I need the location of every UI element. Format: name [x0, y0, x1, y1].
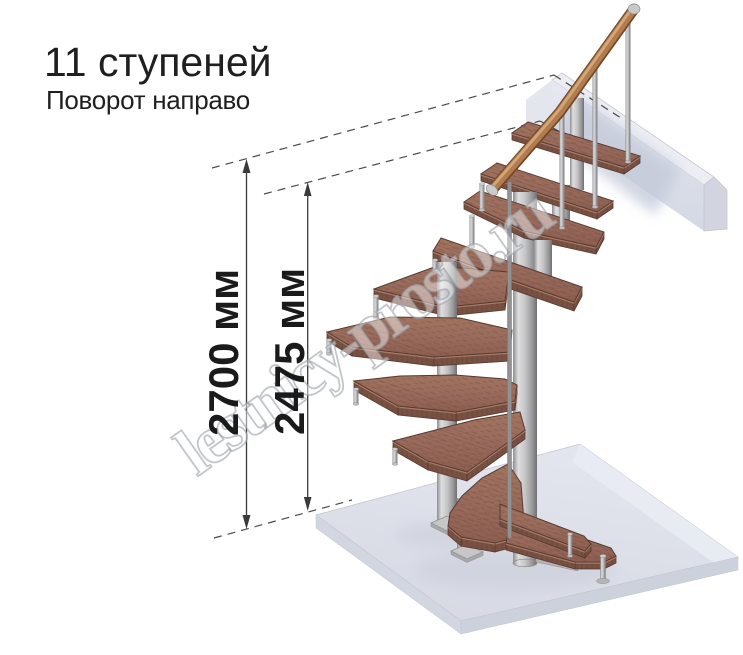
svg-text:2475 мм: 2475 мм — [266, 268, 313, 435]
svg-text:2700 мм: 2700 мм — [200, 269, 247, 436]
